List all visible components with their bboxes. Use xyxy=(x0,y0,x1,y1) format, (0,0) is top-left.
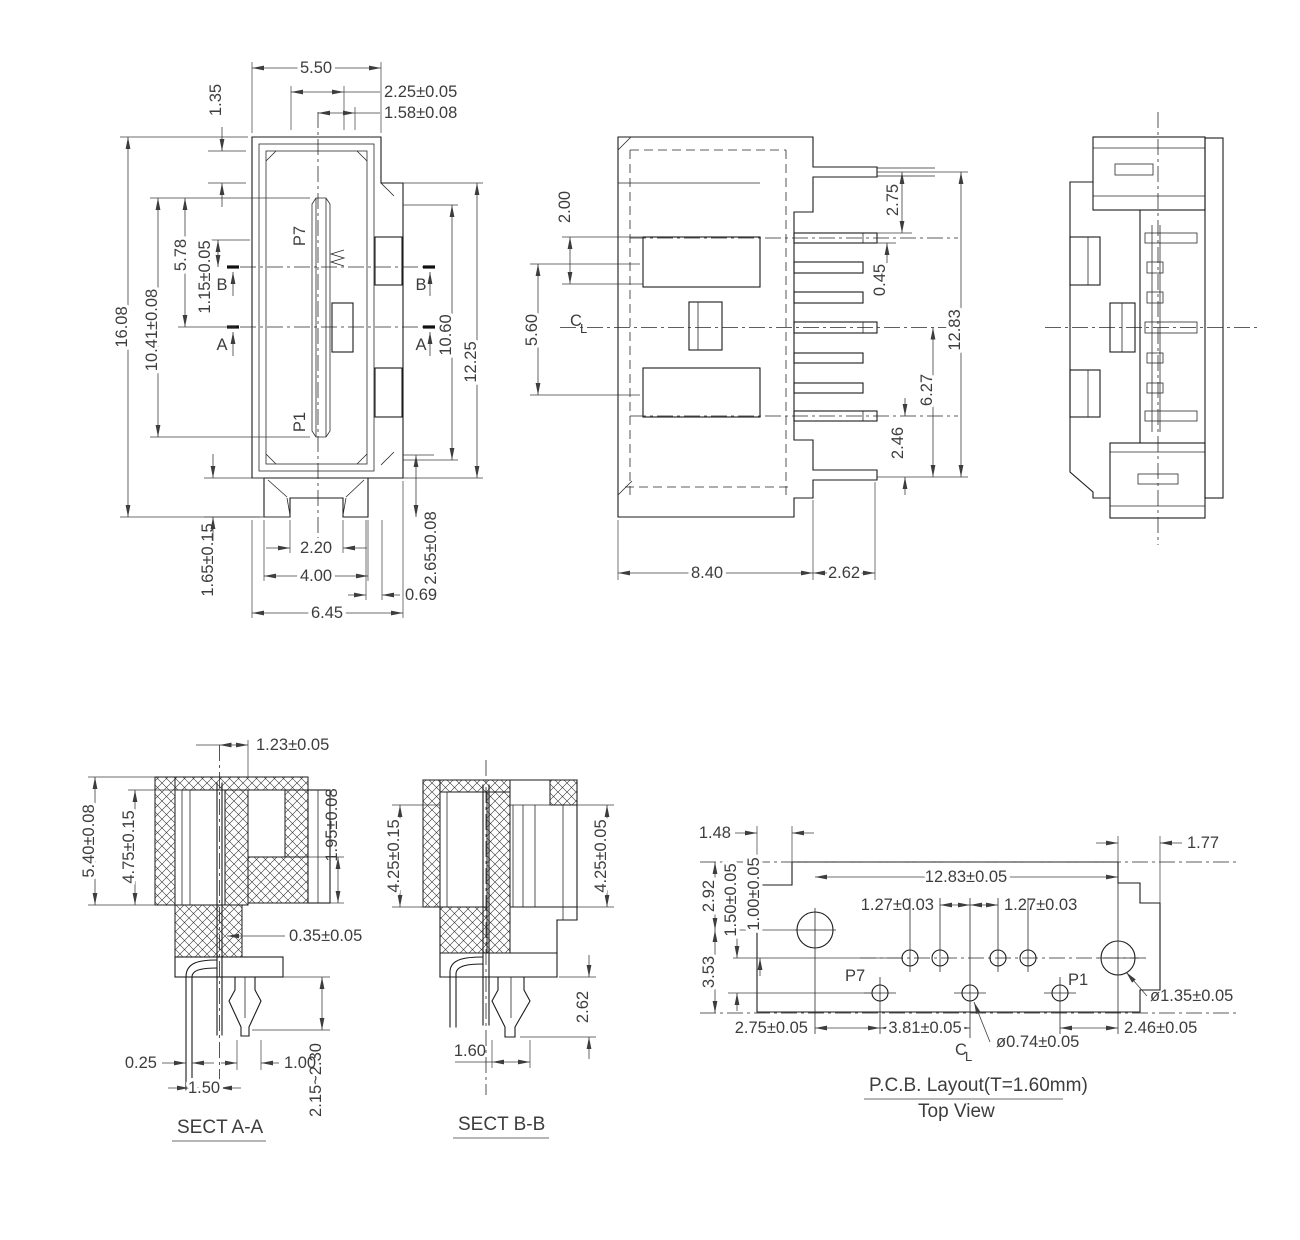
dim-hole-small: ø0.74±0.05 xyxy=(996,1033,1079,1051)
dim-cavity-depth: 4.75±0.15 xyxy=(120,810,138,883)
dim-pitch-left: 1.27±0.03 xyxy=(861,896,934,914)
dim-row2: 1.50±0.05 xyxy=(722,863,740,936)
dim-top-width: 5.50 xyxy=(300,59,332,77)
dim-d2: 3.81±0.05 xyxy=(888,1019,961,1037)
dim-right-inner: 10.60 xyxy=(437,314,455,355)
dim-post-step: 2.00 xyxy=(556,191,574,223)
dim-shoulder: 1.95±0.08 xyxy=(323,788,341,861)
dim-total-height: 16.08 xyxy=(113,306,131,347)
dim-pin-span: 6.27 xyxy=(918,374,936,406)
section-b-label-left: B xyxy=(216,276,227,294)
sheet-background xyxy=(0,0,1300,1240)
dim-notch: 1.48 xyxy=(699,824,731,842)
dim-flange-width: 4.00 xyxy=(300,567,332,585)
connector-technical-drawing: B B A A P7 P1 5.50 2.25±0.05 1.58±0.08 1… xyxy=(0,0,1300,1240)
dim-pitch-right: 1.27±0.03 xyxy=(1004,896,1077,914)
section-b-label-right: B xyxy=(415,276,426,294)
centerline-symbol-l: L xyxy=(580,321,587,336)
dim-total-width: 6.45 xyxy=(311,604,343,622)
pcb-p7-label: P7 xyxy=(845,967,865,985)
pcb-title: P.C.B. Layout(T=1.60mm) xyxy=(869,1075,1088,1096)
pcb-p1-label: P1 xyxy=(1068,971,1088,989)
dim-row1: 2.92 xyxy=(700,880,718,912)
dim-row4: 3.53 xyxy=(700,956,718,988)
pcb-subtitle: Top View xyxy=(918,1101,995,1122)
dim-pin-thick: 0.45 xyxy=(871,264,889,296)
dim-depth-right: 4.25±0.05 xyxy=(592,819,610,892)
dim-d3: 2.46±0.05 xyxy=(1124,1019,1197,1037)
dim-tail-a: 2.15~2.30 xyxy=(307,1043,325,1117)
pin7-label: P7 xyxy=(291,226,309,246)
dim-latch-bottom: 2.65±0.08 xyxy=(422,511,440,584)
dim-row3: 1.00±0.05 xyxy=(745,857,763,930)
dim-hole-big: ø1.35±0.05 xyxy=(1150,987,1233,1005)
pin1-label: P1 xyxy=(291,412,309,432)
dim-latch-offset: 1.58±0.08 xyxy=(384,104,457,122)
dim-d1: 2.75±0.05 xyxy=(735,1019,808,1037)
dim-edge: 1.77 xyxy=(1187,834,1219,852)
dim-sect-a-height: 5.40±0.08 xyxy=(80,804,98,877)
dim-hole-span: 12.83±0.05 xyxy=(925,868,1007,886)
dim-pin-bottom: 2.46 xyxy=(889,427,907,459)
dim-slot-width: 2.25±0.05 xyxy=(384,83,457,101)
dim-inner-height: 10.41±0.08 xyxy=(143,289,161,371)
dim-step: 1.35 xyxy=(207,84,225,116)
dim-fork-width-b: 1.60 xyxy=(454,1042,486,1060)
dim-upper-height: 5.78 xyxy=(172,239,190,271)
dim-blade-offset: 1.23±0.05 xyxy=(256,736,329,754)
dim-pin-top: 2.75 xyxy=(884,184,902,216)
dim-right-height: 12.25 xyxy=(462,341,480,382)
dim-pin-offset: 1.15±0.05 xyxy=(196,240,214,313)
dim-total-span: 12.83 xyxy=(946,309,964,350)
dim-pin-width: 0.25 xyxy=(125,1054,157,1072)
dim-notch-width: 2.20 xyxy=(300,539,332,557)
dim-post-width: 2.62 xyxy=(828,564,860,582)
dim-body-width: 8.40 xyxy=(691,564,723,582)
dim-tail-b: 2.62 xyxy=(574,991,592,1023)
section-a-title: SECT A-A xyxy=(177,1117,264,1138)
dim-blade-thick: 0.35±0.05 xyxy=(289,927,362,945)
section-b-title: SECT B-B xyxy=(458,1114,545,1135)
dim-pin-pitch: 1.50 xyxy=(188,1079,220,1097)
dim-gap: 0.69 xyxy=(405,586,437,604)
dim-depth-left: 4.25±0.15 xyxy=(385,819,403,892)
pcb-centerline-l: L xyxy=(965,1049,972,1064)
section-a-label-right: A xyxy=(415,336,426,354)
section-a-label-left: A xyxy=(216,336,227,354)
dim-slot-span: 5.60 xyxy=(523,314,541,346)
dim-flange-height: 1.65±0.15 xyxy=(199,523,217,596)
